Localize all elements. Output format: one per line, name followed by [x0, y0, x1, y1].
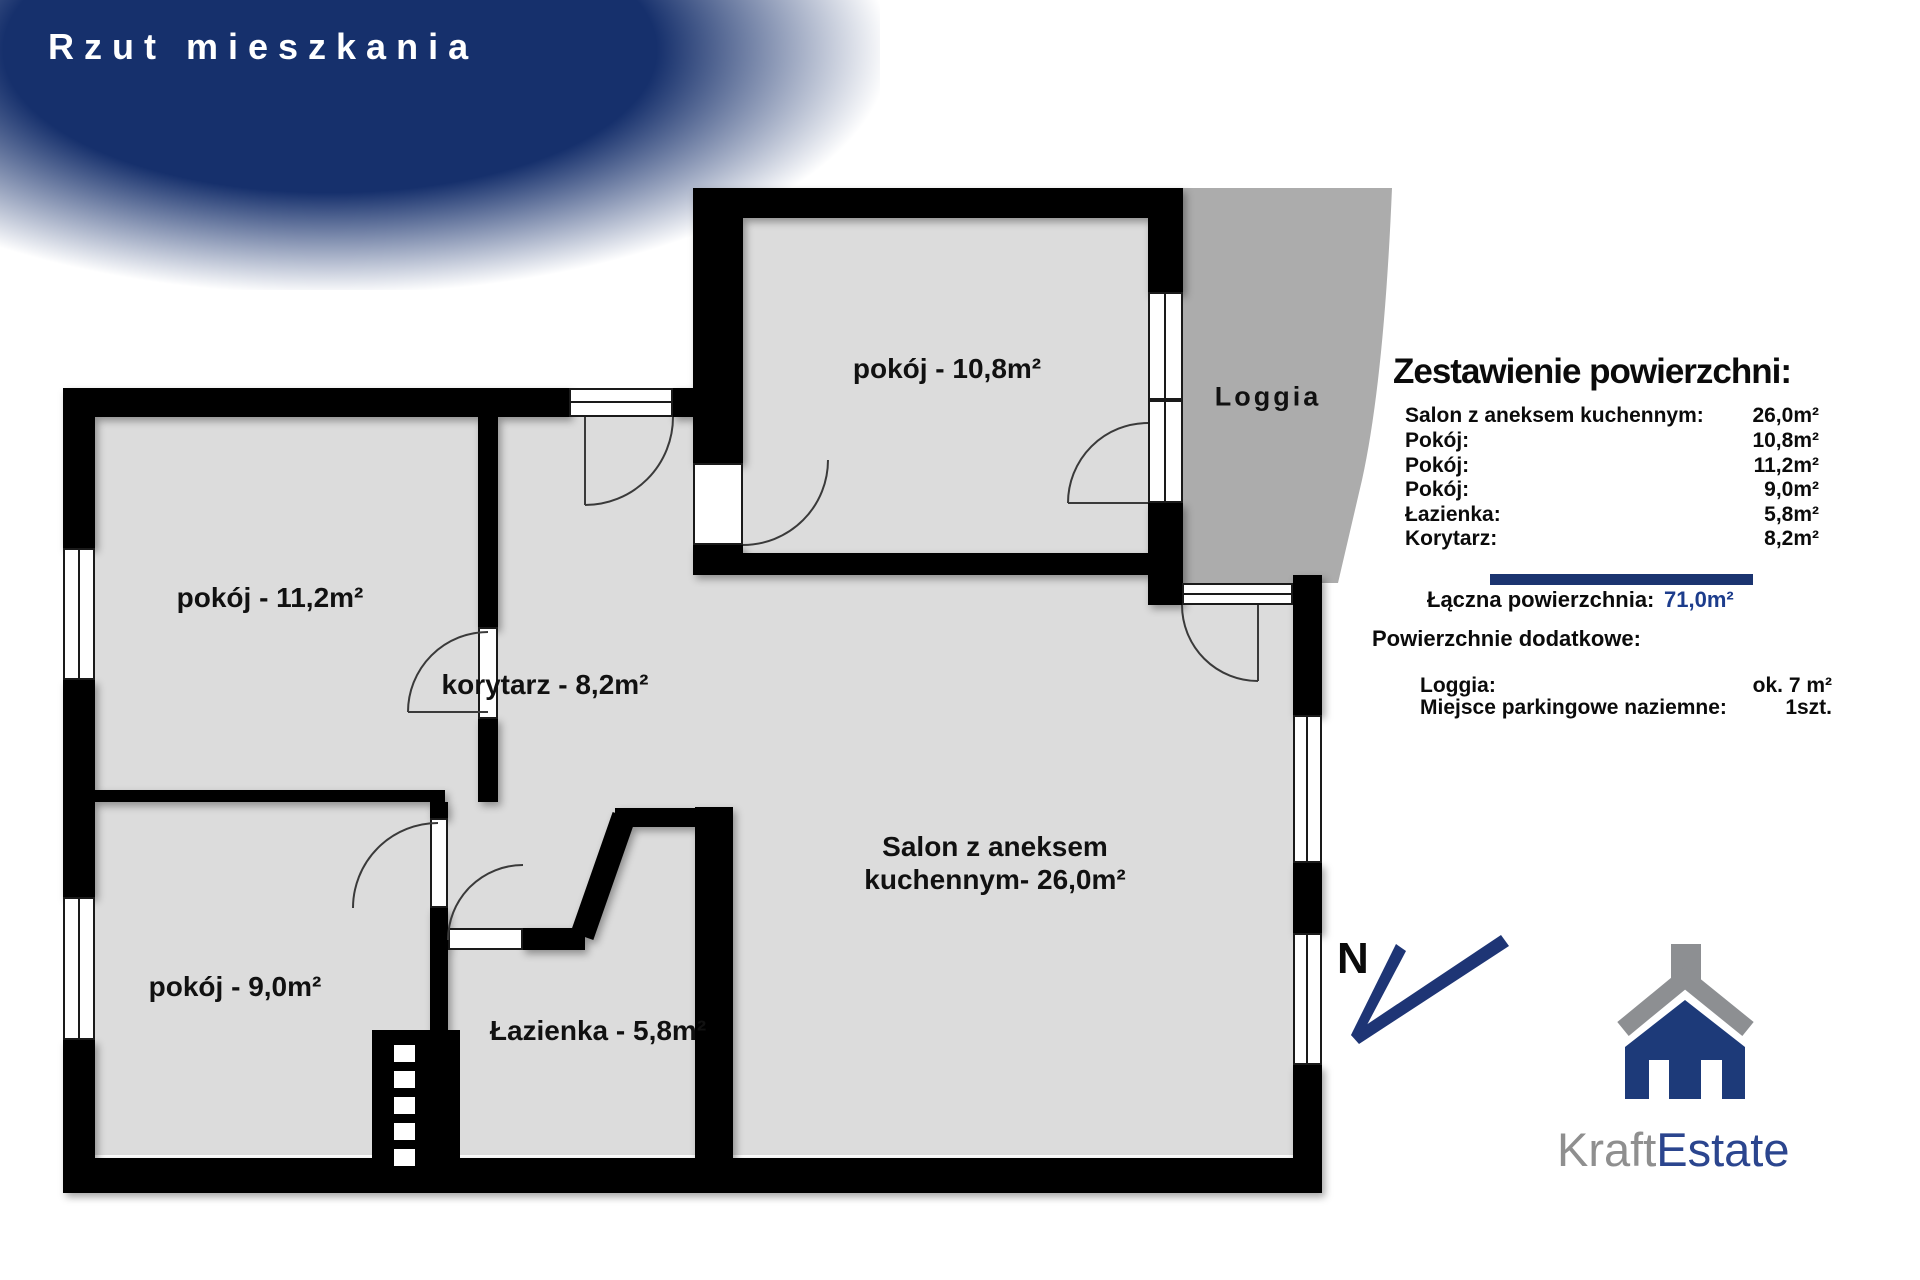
summary-row-value: 11,2m² [1754, 454, 1819, 478]
summary-row: Pokój: 10,8m² [1405, 429, 1819, 453]
additional-row: Miejsce parkingowe naziemne: 1szt. [1420, 696, 1832, 720]
summary-row-label: Korytarz: [1405, 527, 1497, 551]
door-leaf-pokoj-90 [431, 819, 447, 907]
summary-row-value: 26,0m² [1752, 404, 1819, 428]
room-label-salon: Salon z aneksem kuchennym- 26,0m² [864, 830, 1125, 896]
summary-row-value: 5,8m² [1764, 503, 1819, 527]
logo-house-icon [1623, 944, 1748, 1099]
room-label-lazienka: Łazienka - 5,8m² [490, 1015, 706, 1047]
ventilation-shaft [372, 1030, 460, 1166]
window-pokoj-112 [64, 549, 94, 679]
summary-row-label: Pokój: [1405, 478, 1469, 502]
room-label-pokoj-112: pokój - 11,2m² [177, 582, 364, 614]
room-label-korytarz: korytarz - 8,2m² [442, 669, 649, 701]
summary-row-label: Salon z aneksem kuchennym: [1405, 404, 1704, 428]
additional-row: Loggia: ok. 7 m² [1420, 674, 1832, 698]
door-leaf-pokoj-108 [694, 464, 742, 544]
summary-row: Pokój: 9,0m² [1405, 478, 1819, 502]
summary-row: Łazienka: 5,8m² [1405, 503, 1819, 527]
room-label-salon-line1: Salon z aneksem [864, 830, 1125, 863]
total-value: 71,0m² [1664, 587, 1734, 613]
summary-row-label: Pokój: [1405, 454, 1469, 478]
total-label: Łączna powierzchnia: [1427, 587, 1654, 612]
additional-row-label: Loggia: [1420, 674, 1496, 698]
additional-row-value: 1szt. [1785, 696, 1832, 720]
additional-areas-title: Powierzchnie dodatkowe: [1372, 626, 1641, 652]
summary-row: Salon z aneksem kuchennym: 26,0m² [1405, 404, 1819, 428]
logo-wordmark: KraftEstate [1557, 1122, 1790, 1177]
room-label-pokoj-90: pokój - 9,0m² [149, 971, 322, 1003]
room-label-salon-line2: kuchennym- 26,0m² [864, 863, 1125, 896]
summary-row-label: Łazienka: [1405, 503, 1501, 527]
room-label-pokoj-108: pokój - 10,8m² [853, 353, 1041, 385]
additional-row-label: Miejsce parkingowe naziemne: [1420, 696, 1727, 720]
window-pokoj-90 [64, 898, 94, 1039]
north-label: N [1337, 934, 1369, 984]
door-leaf-lazienka [449, 929, 522, 949]
window-pokoj-108 [1149, 293, 1182, 399]
summary-row: Pokój: 11,2m² [1405, 454, 1819, 478]
summary-row: Korytarz: 8,2m² [1405, 527, 1819, 551]
room-label-loggia: Loggia [1215, 382, 1322, 413]
logo-wordmark-estate: Estate [1656, 1123, 1789, 1176]
summary-row-value: 10,8m² [1752, 429, 1819, 453]
summary-title: Zestawienie powierzchni: [1393, 352, 1791, 392]
total-row: Łączna powierzchnia: 71,0m² [1427, 587, 1787, 613]
total-divider-bar [1490, 574, 1753, 585]
window-salon-upper [1294, 716, 1321, 862]
summary-row-value: 8,2m² [1764, 527, 1819, 551]
area-summary-panel: Zestawienie powierzchni: Salon z aneksem… [1372, 352, 1842, 752]
summary-row-label: Pokój: [1405, 429, 1469, 453]
window-salon-loggia [1183, 584, 1292, 604]
north-arrow-icon [1351, 935, 1509, 1044]
summary-row-value: 9,0m² [1764, 478, 1819, 502]
balcony-door-pokoj-108 [1149, 401, 1182, 502]
additional-row-value: ok. 7 m² [1753, 674, 1832, 698]
floor-plan-page: Rzut mieszkania [0, 0, 1920, 1280]
window-salon-lower [1294, 934, 1321, 1064]
entry-door-glazing [570, 389, 672, 416]
logo-wordmark-kraft: Kraft [1557, 1123, 1656, 1176]
